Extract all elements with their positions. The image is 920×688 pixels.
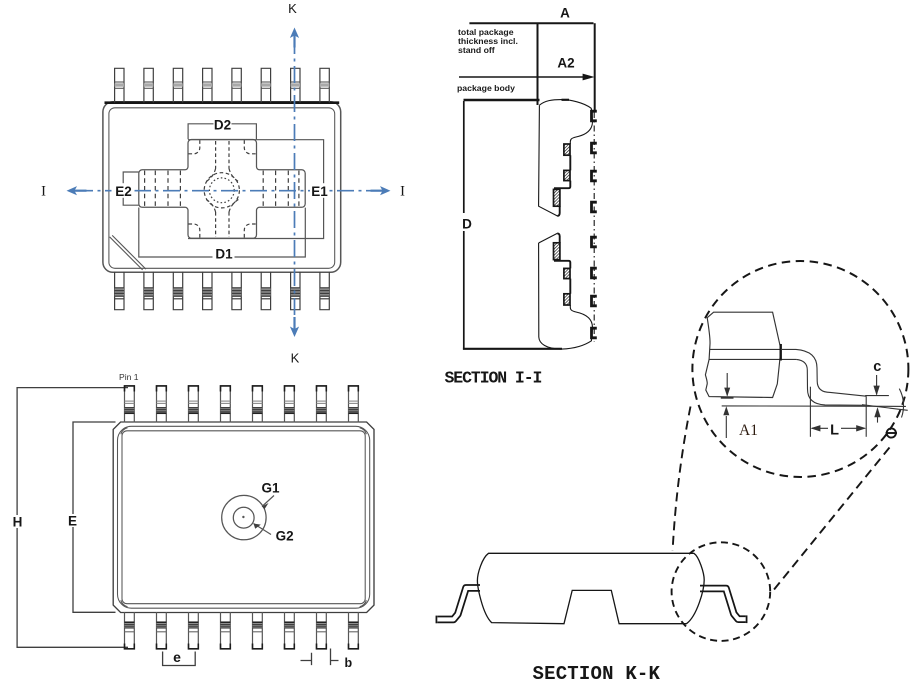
svg-text:E2: E2	[115, 184, 132, 199]
svg-text:SECTION I-I: SECTION I-I	[445, 369, 542, 388]
svg-text:I: I	[400, 184, 405, 200]
svg-text:L: L	[830, 423, 839, 439]
svg-text:E1: E1	[311, 184, 328, 199]
svg-text:package body: package body	[457, 83, 515, 93]
svg-text:K: K	[288, 1, 297, 16]
svg-text:A1: A1	[739, 422, 758, 439]
svg-text:SECTION K-K: SECTION K-K	[533, 663, 661, 685]
svg-text:G2: G2	[276, 529, 294, 544]
svg-text:I: I	[41, 184, 46, 200]
svg-text:e: e	[173, 649, 181, 665]
svg-text:A2: A2	[557, 56, 574, 71]
svg-text:stand off: stand off	[458, 45, 495, 55]
svg-text:E: E	[68, 514, 77, 529]
svg-text:G1: G1	[262, 481, 281, 496]
svg-text:H: H	[13, 515, 23, 530]
svg-text:D2: D2	[214, 117, 231, 132]
svg-text:D: D	[462, 217, 472, 232]
svg-text:c: c	[873, 359, 881, 375]
svg-text:Pin 1: Pin 1	[119, 372, 139, 382]
svg-text:A: A	[560, 6, 570, 21]
svg-text:D1: D1	[215, 247, 233, 262]
svg-text:K: K	[291, 351, 300, 366]
svg-text:b: b	[345, 656, 353, 670]
